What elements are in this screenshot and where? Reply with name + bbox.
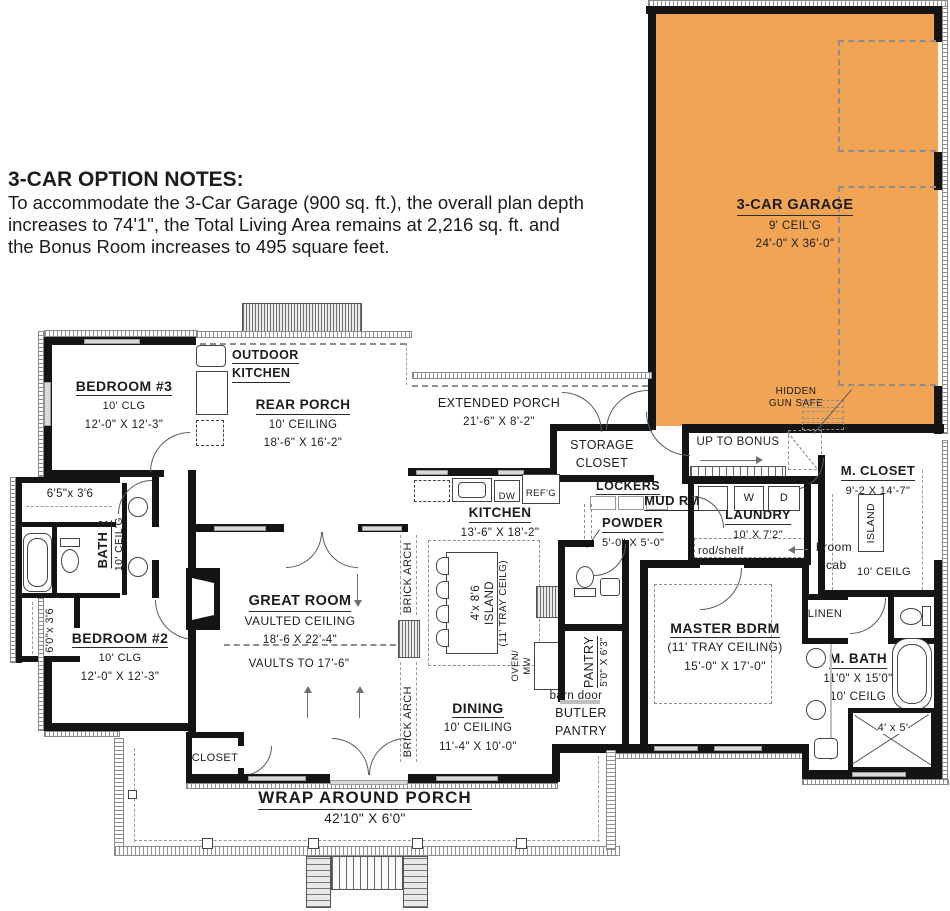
hidden-gun-safe-line: HIDDEN <box>776 386 817 397</box>
rear-porch-ceiling: 10' CEILING <box>269 419 338 431</box>
notes-line: the Bonus Room increases to 495 square f… <box>8 236 653 258</box>
master-name: MASTER BDRM <box>670 620 779 638</box>
door-arc <box>606 390 648 430</box>
wall <box>188 628 196 732</box>
m-bath-name: M. BATH <box>829 651 887 669</box>
window <box>498 470 524 475</box>
wall <box>186 732 244 738</box>
porch-post <box>412 838 423 849</box>
sink-icon <box>128 557 148 577</box>
window <box>248 776 306 781</box>
linen-label: LINEN <box>804 604 846 622</box>
option-notes: 3-CAR OPTION NOTES: To accommodate the 3… <box>8 168 653 258</box>
stool-icon <box>436 557 449 575</box>
linen-text: LINEN <box>808 608 842 620</box>
wrap-porch-name: WRAP AROUND PORCH <box>258 788 471 810</box>
wall <box>888 594 894 644</box>
window <box>362 526 402 531</box>
garage-name: 3-CAR GARAGE <box>737 197 854 216</box>
toilet-icon <box>60 538 80 547</box>
hatch-band <box>412 372 652 379</box>
hatch-band <box>44 731 120 737</box>
bedroom3-ceiling: 10' CLG <box>103 400 146 412</box>
front-door-threshold <box>330 780 408 785</box>
wall <box>44 723 196 731</box>
dining-ceiling: 10' CEILING <box>444 722 513 734</box>
pantry-dims: 5'0" X 6'3" <box>599 637 610 687</box>
wall <box>558 540 565 702</box>
locker-bench <box>590 496 616 510</box>
bedroom3-label: BEDROOM #3 10' CLG 12'-0" X 12'-3" <box>60 378 188 433</box>
wall <box>44 470 164 477</box>
pantry-name: PANTRY <box>582 636 598 688</box>
wrap-porch-dims: 42'10" X 6'0" <box>324 811 406 826</box>
outdoor-kitchen-line: OUTDOOR <box>232 348 299 364</box>
stair-arrow <box>700 460 756 461</box>
storage-closet-line: CLOSET <box>576 456 628 470</box>
roof-line <box>200 343 406 345</box>
bedroom2-name: BEDROOM #2 <box>72 630 169 648</box>
upper-cabinet <box>414 480 450 502</box>
vault-arrow-head <box>304 686 312 693</box>
rear-porch-dims: 18'-6" X 16'-2" <box>264 437 343 449</box>
wall <box>934 560 942 778</box>
roof-line <box>412 385 648 387</box>
rod-shelf-text: rod/shelf <box>698 545 744 557</box>
stool-icon <box>436 581 449 599</box>
butler-pantry-label: BUTLER PANTRY <box>546 704 616 741</box>
vaults-text: VAULTS TO 17'-6" <box>249 658 350 670</box>
vault-arrow <box>357 574 358 600</box>
door-arc <box>150 432 190 472</box>
brick-arch-text: BRICK ARCH <box>402 542 414 613</box>
broom-cab-line: broom <box>816 540 852 554</box>
window <box>436 776 498 781</box>
hatch-band <box>196 331 412 338</box>
fridge-label: REF'G <box>522 483 560 501</box>
porch-edge <box>114 738 124 856</box>
cased-opening <box>584 504 592 544</box>
m-bath-dims: 11'0" X 15'0" <box>823 673 892 685</box>
bedroom2-ceiling: 10' CLG <box>99 652 142 664</box>
floor-plan: 3-CAR OPTION NOTES: To accommodate the 3… <box>0 0 950 911</box>
broom-cab-arrow-line <box>794 549 808 550</box>
wall <box>238 732 244 746</box>
island-ceiling-text: (11' TRAY CEILG) <box>498 560 509 646</box>
window <box>714 746 762 751</box>
toilet-icon <box>574 588 596 597</box>
door-arc <box>322 532 358 568</box>
chimney <box>242 303 362 333</box>
freestanding-tub-inner <box>897 644 927 704</box>
master-ceiling: (11' TRAY CEILING) <box>667 640 782 654</box>
closet-rod <box>32 602 33 654</box>
fireplace-firebox <box>192 578 214 620</box>
broom-cab-label: broom cab <box>816 538 872 575</box>
porch-edge <box>114 846 620 856</box>
bedroom3-dims: 12'-0" X 12'-3" <box>85 419 164 431</box>
rear-porch-label: REAR PORCH 10' CEILING 18'-6" X 16'-2" <box>236 396 370 451</box>
sink-icon <box>806 700 826 720</box>
window <box>416 470 448 475</box>
door-arc <box>646 412 690 456</box>
wall <box>648 6 656 430</box>
gun-safe-steps <box>802 411 844 419</box>
wall <box>152 477 159 527</box>
closet-rod <box>922 470 923 590</box>
porch-post <box>516 838 527 849</box>
hatch-band <box>942 6 948 434</box>
great-room-name: GREAT ROOM <box>249 593 352 612</box>
wall <box>16 598 22 662</box>
step-pier <box>306 856 331 908</box>
notes-title: 3-CAR OPTION NOTES: <box>8 168 653 192</box>
closet-text: CLOSET <box>192 752 238 764</box>
wall <box>934 152 942 190</box>
garage-dims: 24'-0" X 36'-0" <box>756 238 835 250</box>
refg-text: REF'G <box>526 488 556 499</box>
wall <box>804 484 811 564</box>
porch-roof-line <box>598 756 599 842</box>
butler-line: BUTLER <box>555 706 607 720</box>
porch-edge <box>606 750 616 850</box>
porch-post <box>128 790 137 799</box>
kitchen-sink-basin <box>458 482 486 498</box>
master-label: MASTER BDRM (11' TRAY CEILING) 15'-0" X … <box>650 620 800 675</box>
porch-post <box>202 838 213 849</box>
great-room-ceiling: VAULTED CEILING <box>245 614 356 628</box>
outdoor-cabinet <box>196 420 224 446</box>
oven-text: OVEN/ <box>510 650 521 682</box>
wall <box>188 470 196 530</box>
window <box>214 526 266 531</box>
grill-icon <box>196 345 226 367</box>
window <box>44 382 51 426</box>
outdoor-kitchen-label: OUTDOOR KITCHEN <box>232 346 318 383</box>
wall <box>74 598 80 628</box>
notes-line: increases to 74'1", the Total Living Are… <box>8 214 653 236</box>
vault-arrow <box>307 692 308 718</box>
door-arc <box>332 738 369 775</box>
wall <box>44 662 52 730</box>
wall <box>934 6 942 42</box>
wall <box>152 560 159 598</box>
oven-text: MW <box>522 657 533 675</box>
rear-porch-name: REAR PORCH <box>256 397 351 415</box>
dishwasher-label: DW <box>494 486 520 504</box>
vault-arrow-head <box>354 600 362 607</box>
dryer-text: D <box>780 492 788 504</box>
rod-shelf-label: rod/shelf <box>698 541 758 559</box>
closet-label: CLOSET <box>188 748 242 766</box>
door-arc <box>369 738 406 775</box>
wall <box>640 560 648 750</box>
step-pier <box>403 856 428 908</box>
wall <box>52 527 57 593</box>
bedroom3-name: BEDROOM #3 <box>76 378 173 396</box>
bedroom2-dims: 12'-0" X 12'-3" <box>81 671 160 683</box>
bathtub-icon-inner <box>27 538 48 587</box>
vault-arrow <box>359 692 360 718</box>
wall <box>622 630 629 750</box>
stair-arrow-head <box>756 456 763 464</box>
outdoor-kitchen-line: KITCHEN <box>232 366 290 382</box>
hatch-band <box>44 330 198 337</box>
storage-closet-label: STORAGE CLOSET <box>558 436 646 473</box>
hatch-band <box>802 779 949 785</box>
door-arc <box>850 598 886 634</box>
hatch-band <box>610 753 808 759</box>
bedroom2-label: BEDROOM #2 10' CLG 12'-0" X 12'-3" <box>52 630 188 685</box>
powder-name: POWDER <box>602 516 663 533</box>
vault-arrow-head <box>356 686 364 693</box>
wall <box>802 744 809 776</box>
window <box>84 339 140 344</box>
washer-letter: W <box>734 492 764 505</box>
kitchen-dims: 13'-6" X 18'-2" <box>461 527 540 539</box>
door-arc <box>242 746 272 776</box>
chair-icon <box>814 738 838 759</box>
garage-ceiling: 9' CEIL'G <box>769 220 821 232</box>
wall <box>16 477 120 483</box>
wall <box>646 6 944 14</box>
toilet-icon-bowl <box>576 566 594 588</box>
oven-mw-label: OVEN/ MW <box>508 640 534 692</box>
m-bath-ceiling: 10' CEILG <box>830 691 886 703</box>
dining-label: DINING 10' CEILING 11'-4" X 10'-0" <box>428 700 528 755</box>
extended-porch-dims: 21'-6" X 8'-2" <box>463 416 535 428</box>
shower-size-text: 4' x 5' <box>878 722 909 734</box>
brick-arch-label: BRICK ARCH <box>399 540 417 616</box>
vaults-label: VAULTS TO 17'-6" <box>232 654 366 672</box>
porch-edge <box>406 343 407 385</box>
shower-size-label: 4' x 5' <box>870 718 916 736</box>
wall <box>802 594 848 600</box>
butler-line: PANTRY <box>555 724 607 738</box>
rear-door-opening <box>284 524 358 532</box>
m-closet-name: M. CLOSET <box>841 464 915 481</box>
dryer-letter: D <box>768 492 800 505</box>
front-steps <box>331 856 403 890</box>
powder-sink-icon <box>600 578 620 596</box>
extended-porch-name: EXTENDED PORCH <box>438 396 560 410</box>
up-to-bonus-label: UP TO BONUS <box>688 432 788 450</box>
hatch-band <box>942 440 948 780</box>
great-room-label: GREAT ROOM VAULTED CEILING 18'-6 X 22'-4… <box>228 592 372 648</box>
broom-cab-arrow-icon <box>788 546 795 554</box>
toilet-icon <box>922 606 931 626</box>
wall <box>802 638 848 644</box>
stool-icon <box>436 629 449 647</box>
door-arc <box>562 392 602 432</box>
window <box>852 772 906 777</box>
wall <box>188 530 196 572</box>
island-word-text: ISLAND <box>484 581 496 625</box>
washer-text: W <box>744 492 755 504</box>
toilet-icon-bowl <box>61 549 79 573</box>
wrap-porch-label: WRAP AROUND PORCH 42'10" X 6'0" <box>240 788 490 828</box>
storage-closet-line: STORAGE <box>570 438 634 452</box>
wall <box>744 560 806 568</box>
dining-dims: 11'-4" X 10'-0" <box>439 741 517 753</box>
kitchen-name: KITCHEN <box>469 505 532 523</box>
ridge-line <box>224 644 396 646</box>
sink-icon <box>806 648 826 668</box>
stool-icon <box>436 605 449 623</box>
garage-label: 3-CAR GARAGE 9' CEIL'G 24'-0" X 36'-0" <box>700 196 890 252</box>
dining-name: DINING <box>452 700 503 718</box>
wall <box>640 560 700 568</box>
kitchen-label: KITCHEN 13'-6" X 18'-2" <box>442 504 558 541</box>
wall <box>16 593 120 598</box>
laundry-name: LAUNDRY <box>725 508 791 525</box>
up-to-bonus-text: UP TO BONUS <box>696 436 779 448</box>
window <box>654 746 698 751</box>
notes-line: To accommodate the 3-Car Garage (900 sq.… <box>8 192 653 214</box>
brick-pier <box>398 620 420 658</box>
broom-cab-line: cab <box>816 558 847 572</box>
dw-text: DW <box>499 491 516 502</box>
island-size-text: 4'x 8'6 <box>470 585 482 620</box>
wall <box>558 540 594 547</box>
master-dims: 15'-0" X 17'-0" <box>684 659 766 673</box>
toilet-icon-bowl <box>900 608 922 625</box>
porch-post <box>308 838 319 849</box>
garage-door-bay <box>838 40 936 152</box>
bath2-name: BATH 2 <box>95 520 112 568</box>
door-arc <box>286 532 322 568</box>
outdoor-counter <box>196 371 228 415</box>
